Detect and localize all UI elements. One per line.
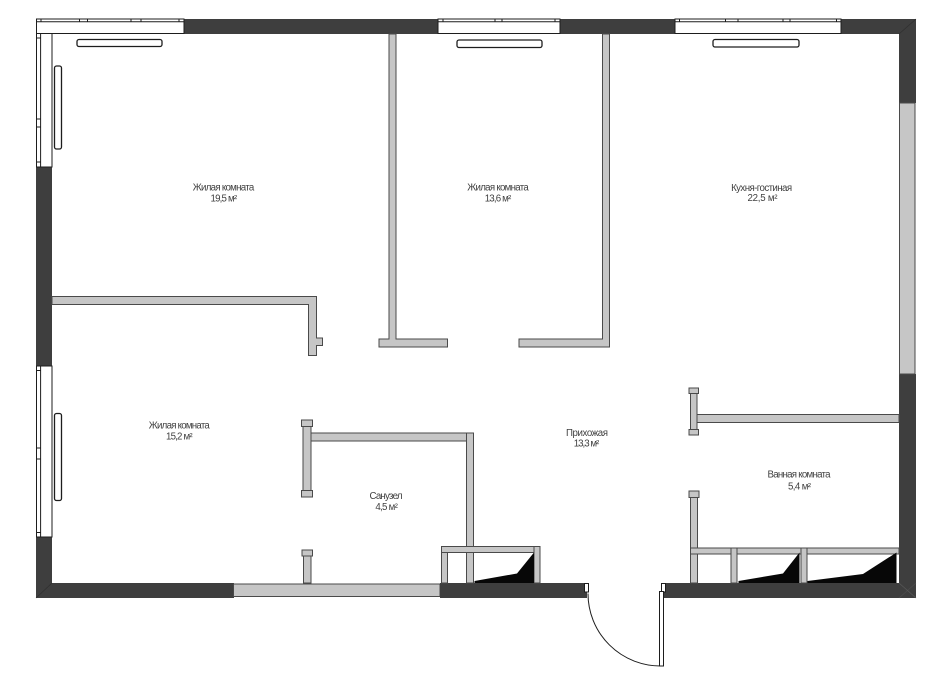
svg-text:13,3 м²: 13,3 м² bbox=[574, 438, 600, 449]
svg-text:15,2 м²: 15,2 м² bbox=[166, 431, 193, 442]
svg-text:Санузел: Санузел bbox=[370, 491, 403, 502]
svg-text:Прихожая: Прихожая bbox=[566, 428, 608, 439]
svg-text:4,5 м²: 4,5 м² bbox=[375, 502, 398, 513]
svg-text:19,5 м²: 19,5 м² bbox=[211, 193, 238, 204]
svg-text:Жилая комната: Жилая комната bbox=[149, 420, 211, 431]
svg-text:Ванная комната: Ванная комната bbox=[768, 470, 832, 481]
svg-text:Кухня-гостиная: Кухня-гостиная bbox=[731, 183, 792, 194]
svg-text:5,4 м²: 5,4 м² bbox=[788, 481, 812, 492]
svg-text:22,5 м²: 22,5 м² bbox=[748, 193, 779, 204]
svg-text:Жилая комната: Жилая комната bbox=[467, 183, 529, 194]
svg-text:Жилая комната: Жилая комната bbox=[193, 183, 255, 194]
svg-text:13,6 м²: 13,6 м² bbox=[485, 193, 512, 204]
